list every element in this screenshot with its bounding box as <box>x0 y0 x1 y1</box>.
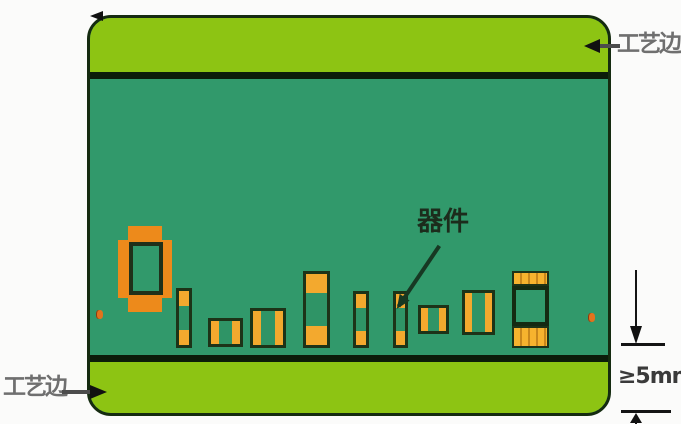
dimension-extension-line-top <box>635 270 637 330</box>
process-edge-arrow-top-tail <box>598 44 620 48</box>
dimension-line-bottom <box>621 410 671 413</box>
pcb-panel <box>87 15 611 416</box>
process-edge-arrow-bottom-icon <box>90 385 107 399</box>
process-edge-arrow-bottom-tail <box>62 390 92 394</box>
process-edge-rail-top <box>90 18 608 79</box>
component-label: 器件 <box>417 209 469 235</box>
process-edge-label-top: 工艺边 <box>617 33 680 56</box>
corner-arrow-icon <box>90 11 103 21</box>
process-edge-label-bottom: 工艺边 <box>3 376 66 399</box>
dimension-value: ≥5mm <box>618 364 681 389</box>
process-edge-arrow-top-icon <box>584 39 600 53</box>
dimension-line-top <box>621 343 665 346</box>
dimension-arrow-down-icon <box>630 326 642 344</box>
process-edge-rail-bottom <box>90 355 608 413</box>
